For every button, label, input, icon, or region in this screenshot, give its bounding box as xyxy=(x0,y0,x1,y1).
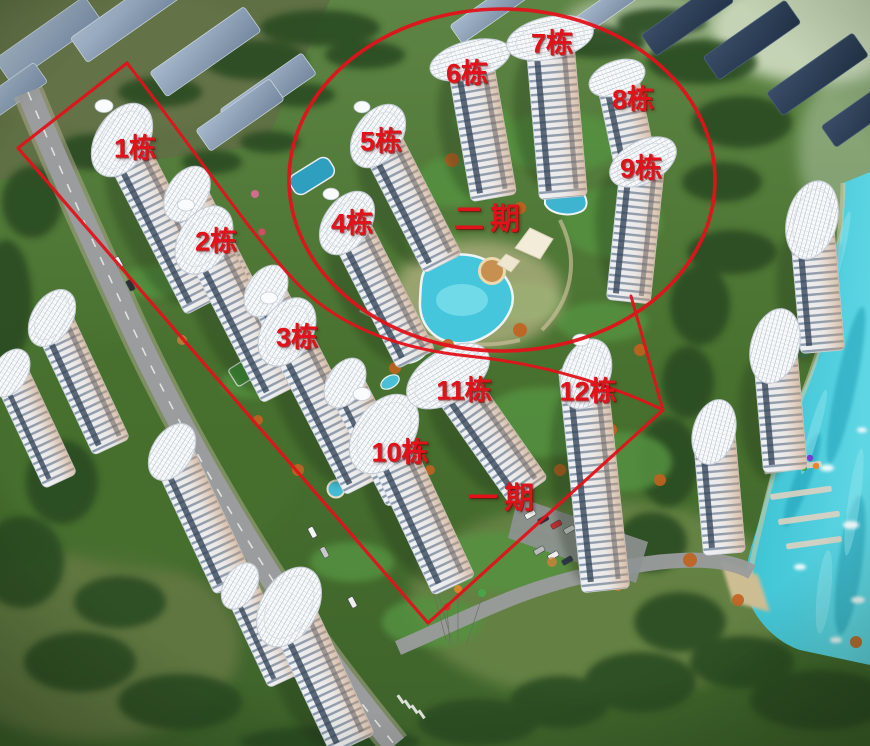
vignette-overlay xyxy=(0,0,870,746)
aerial-site-rendering: .bd{fill:url(#fac);stroke:#c9cfd8;stroke… xyxy=(0,0,870,746)
site-scene-canvas: .bd{fill:url(#fac);stroke:#c9cfd8;stroke… xyxy=(0,0,870,746)
